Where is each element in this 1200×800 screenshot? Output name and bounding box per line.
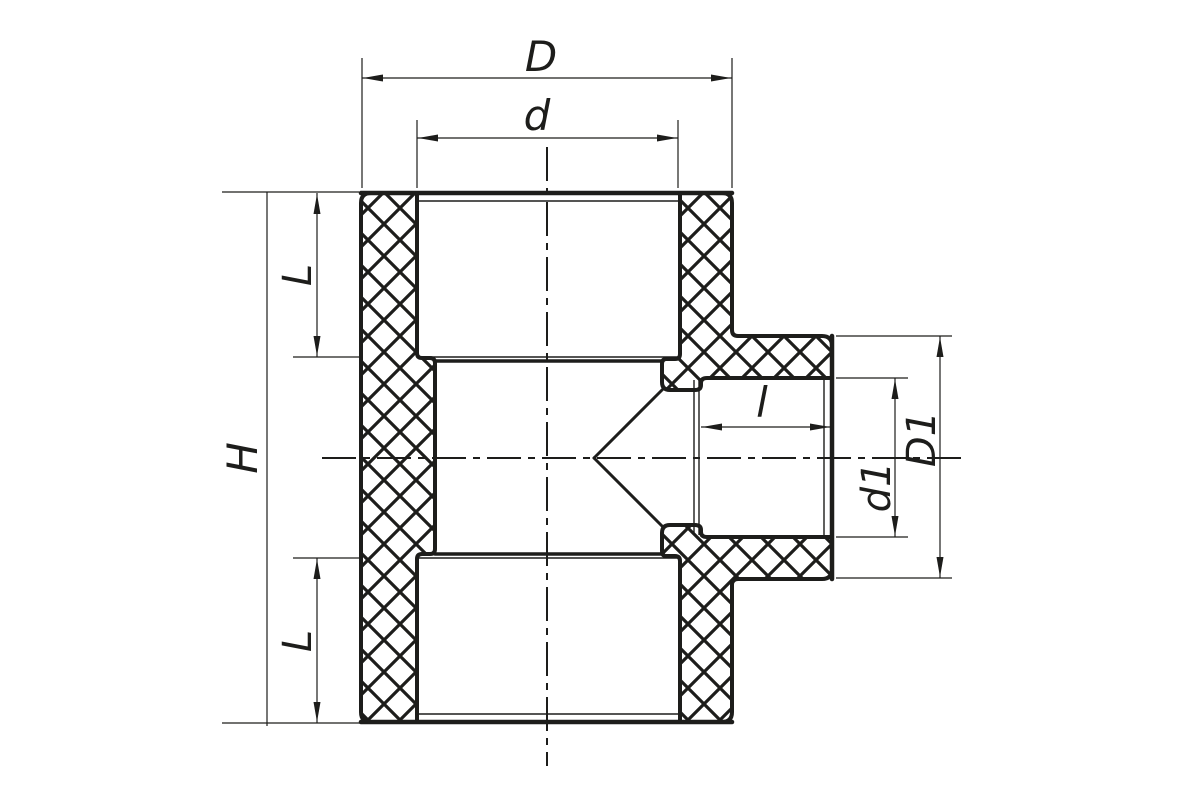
arrow-d1-up — [892, 379, 899, 399]
arrow-L-top-up — [314, 194, 321, 214]
cone-edge-lower — [594, 458, 662, 526]
dim-label-D: D — [525, 32, 557, 81]
arrow-L-bottom-up — [314, 559, 321, 579]
arrow-L-top-down — [314, 336, 321, 356]
cone-edge-upper — [594, 390, 662, 458]
right-wall-branch-top-section — [662, 193, 832, 390]
dim-label-D1: D1 — [899, 411, 945, 467]
dim-label-H: H — [218, 442, 267, 474]
arrow-d1-down — [892, 516, 899, 536]
dim-label-l: l — [756, 378, 768, 427]
dim-label-L-bottom: L — [275, 630, 321, 652]
arrow-D1-down — [937, 557, 944, 577]
arrow-D-left — [363, 75, 383, 82]
arrow-d-left — [418, 135, 438, 142]
dim-label-L-top: L — [275, 264, 321, 286]
arrow-l-right — [810, 424, 830, 431]
dim-label-d1: d1 — [854, 462, 900, 513]
right-wall-branch-bottom-section — [662, 525, 832, 722]
drawing-canvas: D d H L L l d1 D1 — [0, 0, 1200, 800]
dim-label-d: d — [524, 91, 551, 140]
arrow-D1-up — [937, 337, 944, 357]
arrow-d-right — [657, 135, 677, 142]
arrow-L-bottom-down — [314, 702, 321, 722]
arrow-D-right — [711, 75, 731, 82]
arrow-l-left — [702, 424, 722, 431]
tee-fitting-section-drawing: D d H L L l d1 D1 — [0, 0, 1200, 800]
